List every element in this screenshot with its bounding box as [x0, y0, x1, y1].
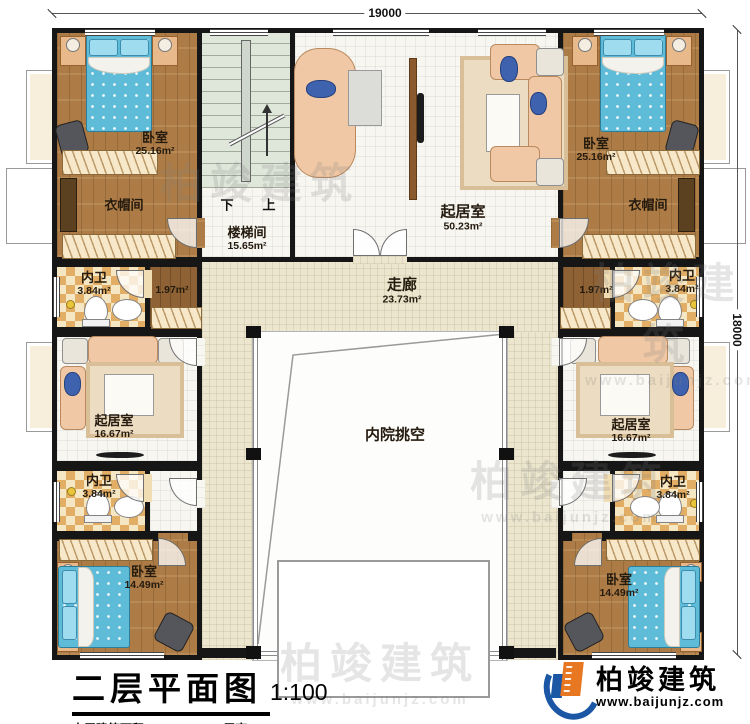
- pillow: [62, 606, 77, 640]
- double-door-opening: [353, 255, 407, 264]
- column: [246, 448, 261, 460]
- room-name: 内卫: [82, 474, 115, 489]
- sofa: [598, 336, 668, 364]
- room-area: 16.67m²: [611, 432, 650, 444]
- room-label-courtyard: 内院挑空: [365, 428, 425, 445]
- room-name: 起居室: [440, 205, 485, 222]
- room-area: 14.49m²: [599, 587, 638, 599]
- room-area: 25.16m²: [576, 151, 615, 163]
- room-area: 23.73m²: [382, 295, 421, 307]
- wardrobe: [62, 234, 176, 259]
- pillow: [681, 606, 696, 640]
- room-area: 15.65m²: [227, 240, 266, 252]
- tv-console: [409, 58, 417, 200]
- bed-sheet: [664, 567, 680, 647]
- plan-title: 二层平面图: [72, 670, 262, 707]
- logo-building-orange-icon: [560, 662, 584, 696]
- room-area: 14.49m²: [124, 579, 163, 591]
- stair-down-label: 下: [220, 195, 233, 214]
- sofa: [294, 48, 356, 178]
- room-label-bath-bl: 内卫3.84m²: [82, 474, 115, 500]
- floor-plan: 卧室25.16m² 衣帽间 下 上 楼梯间15.65m² 起居室50.23m² …: [0, 0, 750, 724]
- room-label-hall-r: 1.97m²: [579, 285, 612, 297]
- column: [246, 646, 261, 659]
- pillow: [89, 39, 118, 56]
- title-block: 二层平面图1:100 本层建筑面积：255.35m²层高：3.60m: [72, 662, 328, 724]
- toilet-tank: [84, 515, 112, 523]
- wardrobe: [582, 234, 696, 259]
- dresser: [678, 178, 695, 232]
- room-label-stairwell: 楼梯间15.65m²: [227, 226, 266, 252]
- sofa: [88, 336, 158, 364]
- room-label-cloak-l: 衣帽间: [104, 199, 143, 214]
- window: [696, 482, 703, 522]
- room-label-bath-br: 内卫3.84m²: [656, 475, 689, 501]
- wardrobe: [606, 539, 700, 561]
- toilet-tank: [656, 515, 684, 523]
- column: [499, 326, 514, 338]
- room-name: 卧室: [124, 565, 163, 580]
- bed-sheet: [78, 567, 94, 647]
- armchair: [536, 158, 564, 186]
- room-label-bedroom-br: 卧室14.49m²: [599, 573, 638, 599]
- corridor-top-band: [202, 262, 558, 332]
- floor-lamp-icon: [67, 487, 76, 496]
- armchair: [536, 48, 564, 76]
- column: [499, 448, 514, 460]
- bay-window: [700, 70, 730, 164]
- window: [80, 652, 164, 659]
- title-row: 二层平面图1:100: [72, 662, 328, 710]
- corridor-left-strip: [202, 332, 253, 660]
- person: [530, 92, 547, 115]
- dresser: [60, 178, 77, 232]
- room-label-bedroom-bl: 卧室14.49m²: [124, 565, 163, 591]
- stair-rail: [241, 40, 251, 182]
- person: [672, 372, 689, 396]
- room-area: 3.84m²: [77, 285, 110, 297]
- sink: [112, 299, 142, 321]
- lamp-icon: [578, 38, 592, 52]
- courtyard-rail-right: [502, 332, 507, 660]
- nightstand: [152, 36, 178, 66]
- room-label-living-top: 起居室50.23m²: [440, 205, 485, 234]
- window: [210, 29, 268, 36]
- coffee-table: [104, 374, 154, 416]
- logo-website: www.baijunjz.com: [596, 694, 724, 709]
- pillow: [62, 570, 77, 604]
- wardrobe: [606, 150, 700, 175]
- room-name: 卧室: [576, 137, 615, 152]
- person: [64, 372, 81, 396]
- tv: [96, 452, 144, 458]
- dimension-top-value: 19000: [364, 6, 405, 20]
- room-label-bath-tl: 内卫3.84m²: [77, 271, 110, 297]
- sink: [628, 299, 658, 321]
- stair-arrowhead-icon: [262, 104, 272, 113]
- pillow: [603, 39, 632, 56]
- side-table: [348, 70, 382, 126]
- toilet-tank: [656, 319, 684, 327]
- door-opening: [144, 270, 152, 298]
- room-name: 卧室: [135, 131, 174, 146]
- window: [85, 29, 155, 36]
- column: [246, 326, 261, 338]
- room-name: 起居室: [611, 418, 650, 433]
- room-name: 走廊: [382, 278, 421, 295]
- plan-scale: 1:100: [270, 679, 328, 705]
- room-area: 3.84m²: [82, 488, 115, 500]
- stair-up-label: 上: [262, 195, 275, 214]
- room-label-bedroom-tl: 卧室25.16m²: [135, 131, 174, 157]
- coffee-table: [600, 374, 650, 416]
- window: [53, 277, 60, 317]
- exterior-box: [6, 168, 54, 244]
- door-opening: [604, 474, 612, 502]
- nightstand: [572, 36, 598, 66]
- room-area: 50.23m²: [440, 222, 485, 234]
- room-label-living-l: 起居室16.67m²: [94, 414, 133, 440]
- room-name: 楼梯间: [227, 226, 266, 241]
- coffee-table: [486, 94, 520, 152]
- window: [53, 482, 60, 522]
- wardrobe: [151, 307, 202, 329]
- window: [594, 29, 664, 36]
- dimension-right-value: 18000: [730, 309, 744, 350]
- nightstand: [60, 36, 86, 66]
- tv: [608, 452, 656, 458]
- room-area: 16.67m²: [94, 428, 133, 440]
- person: [306, 80, 336, 98]
- room-name: 内卫: [77, 271, 110, 286]
- window: [478, 29, 546, 36]
- pillow: [634, 39, 663, 56]
- bay-window: [700, 342, 730, 432]
- door-opening: [144, 474, 152, 502]
- logo-company-name: 柏竣建筑: [596, 658, 720, 697]
- room-name: 卧室: [599, 573, 638, 588]
- room-label-corridor: 走廊23.73m²: [382, 278, 421, 307]
- title-footer: 本层建筑面积：255.35m²层高：3.60m: [72, 720, 328, 724]
- wall-segment: [510, 648, 556, 658]
- title-underline: [72, 712, 270, 716]
- sofa: [490, 146, 540, 182]
- room-area: 1.97m²: [155, 285, 188, 297]
- lamp-icon: [672, 38, 686, 52]
- pillow: [681, 570, 696, 604]
- exterior-box: [702, 168, 746, 244]
- room-name: 衣帽间: [104, 199, 143, 214]
- room-area: 1.97m²: [579, 285, 612, 297]
- room-name: 起居室: [94, 414, 133, 429]
- room-label-hall-l: 1.97m²: [155, 285, 188, 297]
- room-name: 衣帽间: [628, 199, 667, 214]
- wardrobe: [560, 307, 611, 329]
- tv: [417, 93, 424, 143]
- room-name: 内卫: [665, 269, 698, 284]
- toilet-tank: [82, 319, 110, 327]
- person: [500, 56, 518, 82]
- room-area: 3.84m²: [656, 489, 689, 501]
- nightstand: [666, 36, 692, 66]
- room-label-cloak-r: 衣帽间: [628, 199, 667, 214]
- column: [499, 646, 514, 659]
- pillow: [120, 39, 149, 56]
- wardrobe: [59, 539, 153, 561]
- room-name: 内卫: [656, 475, 689, 490]
- room-area: 25.16m²: [135, 145, 174, 157]
- lamp-icon: [66, 38, 80, 52]
- window: [333, 29, 429, 36]
- lamp-icon: [158, 38, 172, 52]
- room-area: 3.84m²: [665, 283, 698, 295]
- room-label-living-r: 起居室16.67m²: [611, 418, 650, 444]
- wall-segment: [202, 648, 248, 658]
- armchair: [62, 338, 88, 364]
- room-name: 内院挑空: [365, 428, 425, 445]
- floor-lamp-icon: [66, 300, 75, 309]
- courtyard-rail-left: [253, 332, 258, 660]
- room-label-bath-tr: 内卫3.84m²: [665, 269, 698, 295]
- room-label-bedroom-tr: 卧室25.16m²: [576, 137, 615, 163]
- stair-direction-arrow: [266, 112, 268, 156]
